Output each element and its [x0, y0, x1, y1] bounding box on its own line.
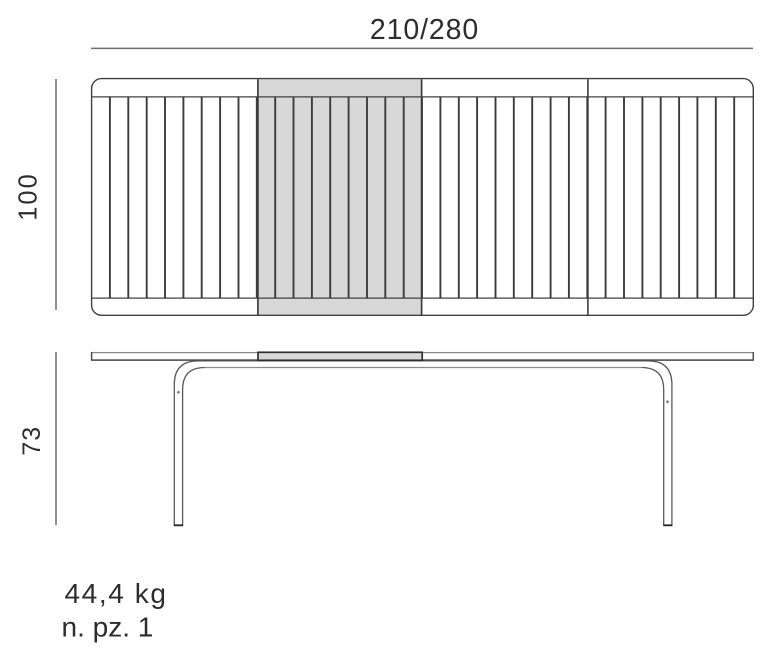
svg-text:210/280: 210/280 — [370, 14, 479, 46]
svg-text:n. pz. 1: n. pz. 1 — [62, 612, 154, 643]
svg-text:44,4 kg: 44,4 kg — [65, 578, 168, 609]
svg-text:100: 100 — [15, 172, 43, 221]
svg-text:73: 73 — [18, 426, 46, 456]
